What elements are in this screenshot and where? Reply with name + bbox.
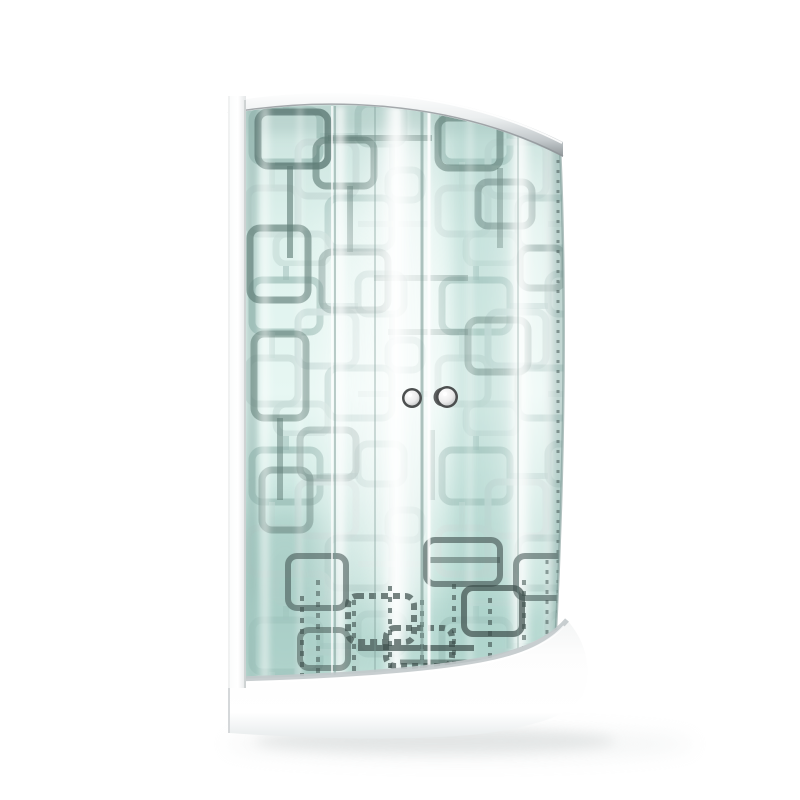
left-frame-profile	[228, 96, 246, 688]
shower-enclosure-product-image	[0, 0, 800, 800]
glass-enclosure	[223, 96, 570, 696]
product-photo-canvas	[0, 0, 800, 800]
door-knob	[402, 388, 422, 408]
